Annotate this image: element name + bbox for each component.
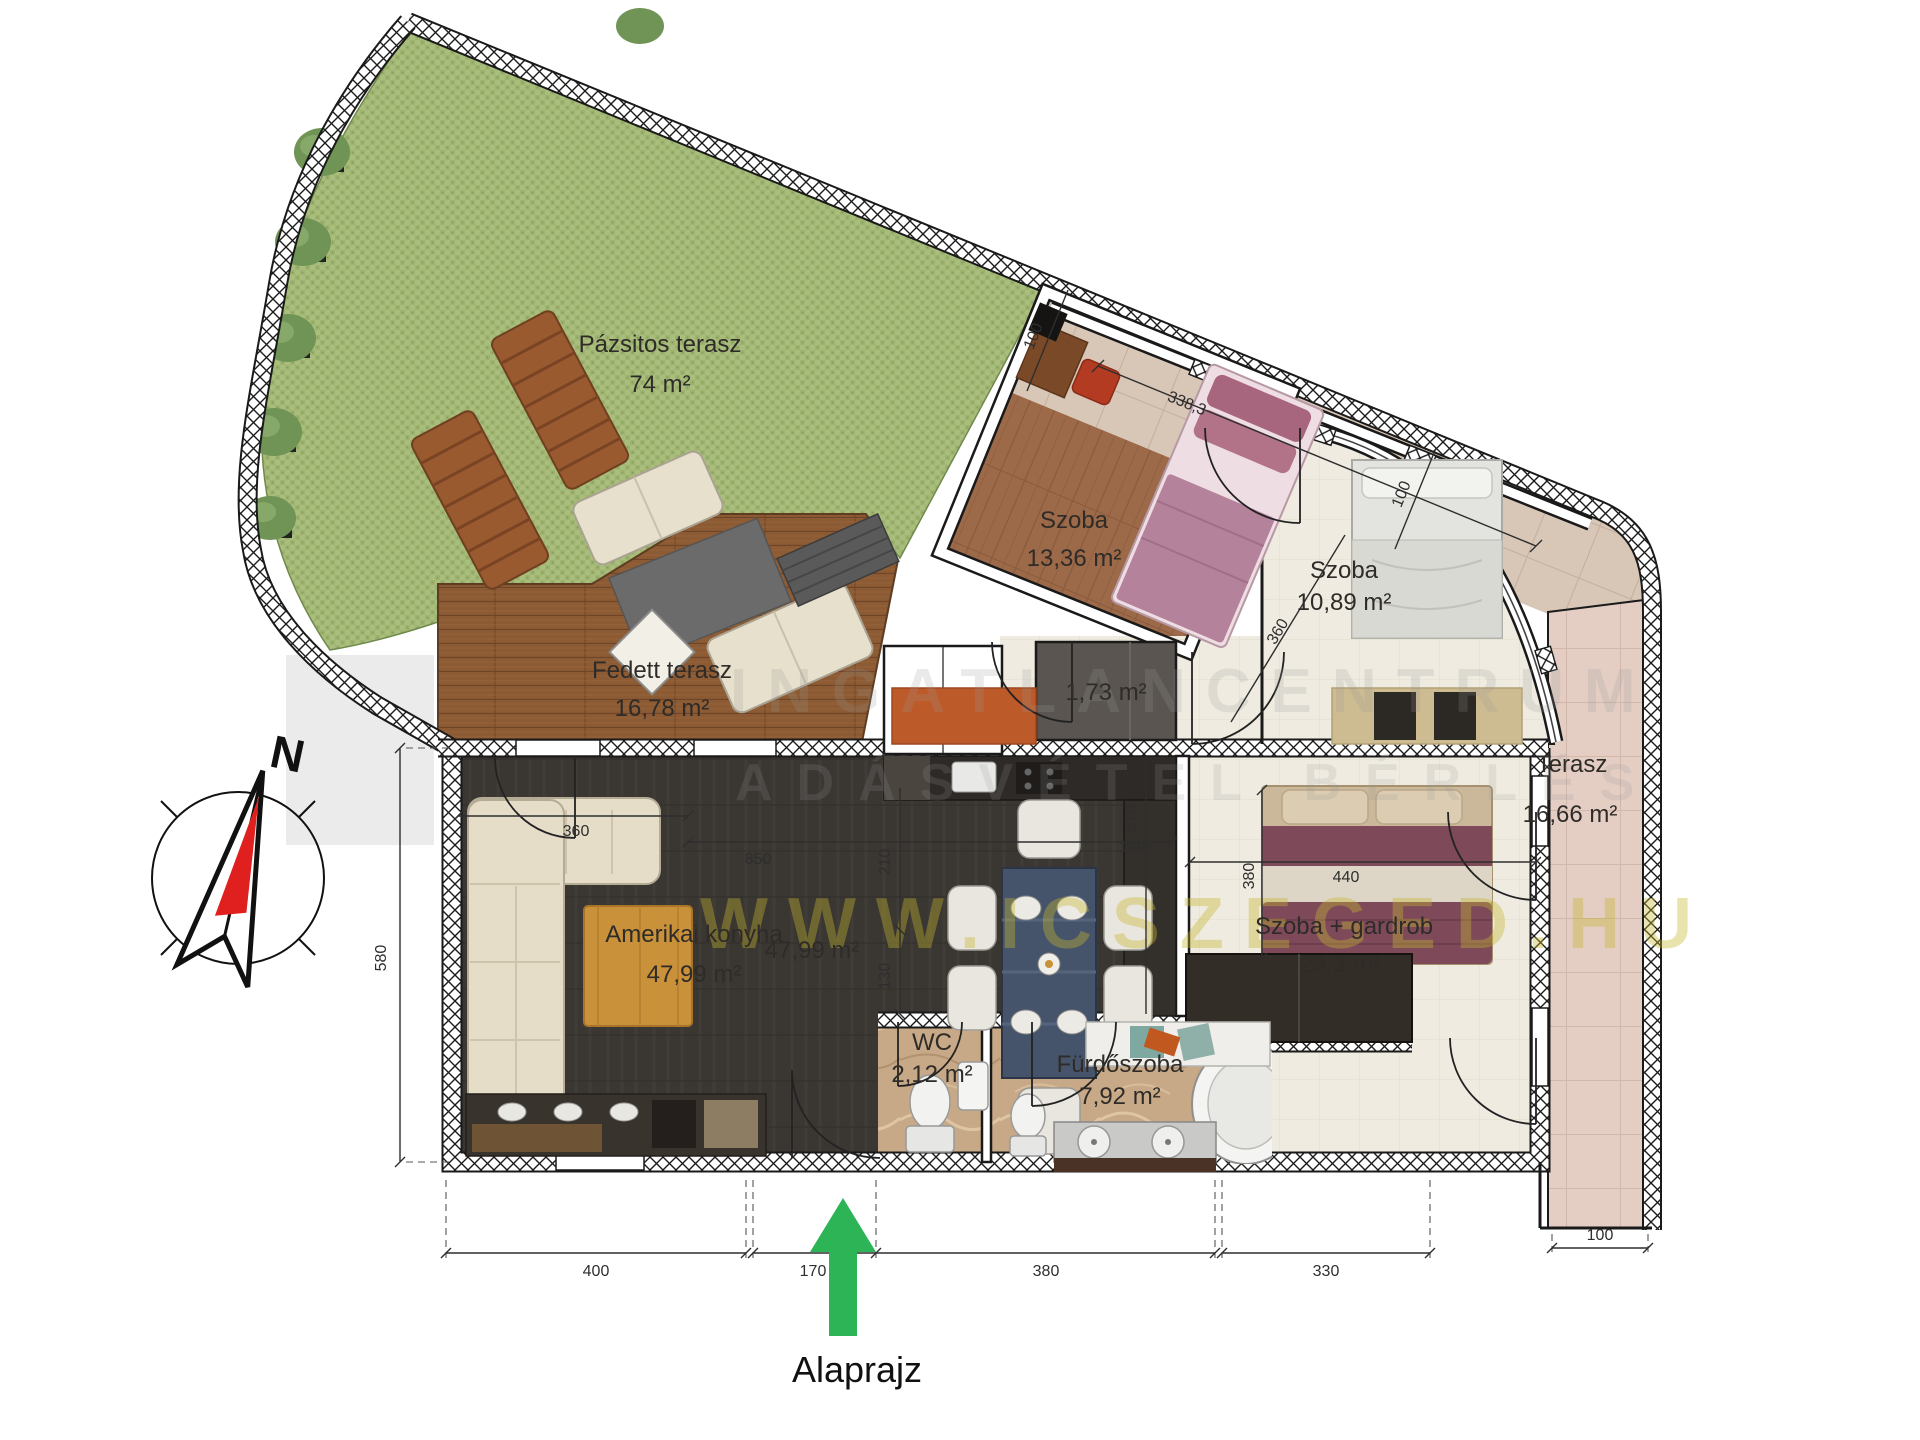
media-sideboard bbox=[466, 1094, 766, 1156]
wc-area: 2,12 m² bbox=[891, 1061, 972, 1088]
bedroom1-area: 13,36 m² bbox=[1027, 545, 1122, 572]
dim-bottom-100: 100 bbox=[1587, 1227, 1614, 1244]
kitchen-name: Amerikai konyha bbox=[605, 921, 783, 948]
dim-int-130b: 130 bbox=[1119, 839, 1146, 856]
dim-int-510: 510 bbox=[1123, 805, 1140, 832]
floor-plan-page: INGATLANCENTRUM ADÁSVÉTEL BÉRLÉS WWW.ICS… bbox=[0, 0, 1920, 1440]
bedroom3-area: 23,3 m² bbox=[1299, 951, 1380, 978]
closet-area: 1,73 m² bbox=[1065, 679, 1146, 706]
watermark-line2: ADÁSVÉTEL BÉRLÉS bbox=[735, 754, 1658, 812]
terrace-name: Terasz bbox=[1537, 751, 1608, 778]
covered-terrace-area: 16,78 m² bbox=[615, 695, 710, 722]
dim-int-360: 360 bbox=[563, 823, 590, 840]
dim-left-580: 580 bbox=[373, 945, 390, 972]
kitchen-area-2: 47,99 m² bbox=[765, 937, 860, 964]
terrace-area: 16,66 m² bbox=[1523, 801, 1618, 828]
dim-bottom-330: 330 bbox=[1313, 1263, 1340, 1280]
dim-int-130a: 130 bbox=[877, 963, 894, 990]
bedroom3-name: Szoba + gardrob bbox=[1255, 913, 1433, 940]
grass-terrace-name: Pázsitos terasz bbox=[579, 331, 742, 358]
bedroom2-area: 10,89 m² bbox=[1297, 589, 1392, 616]
compass: N bbox=[152, 725, 324, 987]
bathroom-name: Fürdőszoba bbox=[1057, 1051, 1184, 1078]
dim-int-440: 440 bbox=[1333, 869, 1360, 886]
dim-int-850: 850 bbox=[745, 851, 772, 868]
bedroom1-name: Szoba bbox=[1040, 507, 1109, 534]
caption-title: Alaprajz bbox=[792, 1349, 922, 1390]
covered-terrace-name: Fedett terasz bbox=[592, 657, 732, 684]
dim-int-380: 380 bbox=[1241, 863, 1258, 890]
grass-terrace-area: 74 m² bbox=[629, 371, 690, 398]
dim-bottom-400: 400 bbox=[583, 1263, 610, 1280]
caption-group: Alaprajz bbox=[792, 1198, 922, 1390]
bedroom2-name: Szoba bbox=[1310, 557, 1379, 584]
bathroom-area: 7,92 m² bbox=[1079, 1083, 1160, 1110]
dim-int-210: 210 bbox=[877, 849, 894, 876]
floor-plan-drawing: INGATLANCENTRUM ADÁSVÉTEL BÉRLÉS WWW.ICS… bbox=[0, 0, 1920, 1440]
wc-name: WC bbox=[912, 1029, 952, 1056]
dim-bottom-380: 380 bbox=[1033, 1263, 1060, 1280]
dim-bottom-170: 170 bbox=[800, 1263, 827, 1280]
kitchen-area: 47,99 m² bbox=[647, 961, 742, 988]
watermark-line1: INGATLANCENTRUM bbox=[730, 657, 1656, 726]
